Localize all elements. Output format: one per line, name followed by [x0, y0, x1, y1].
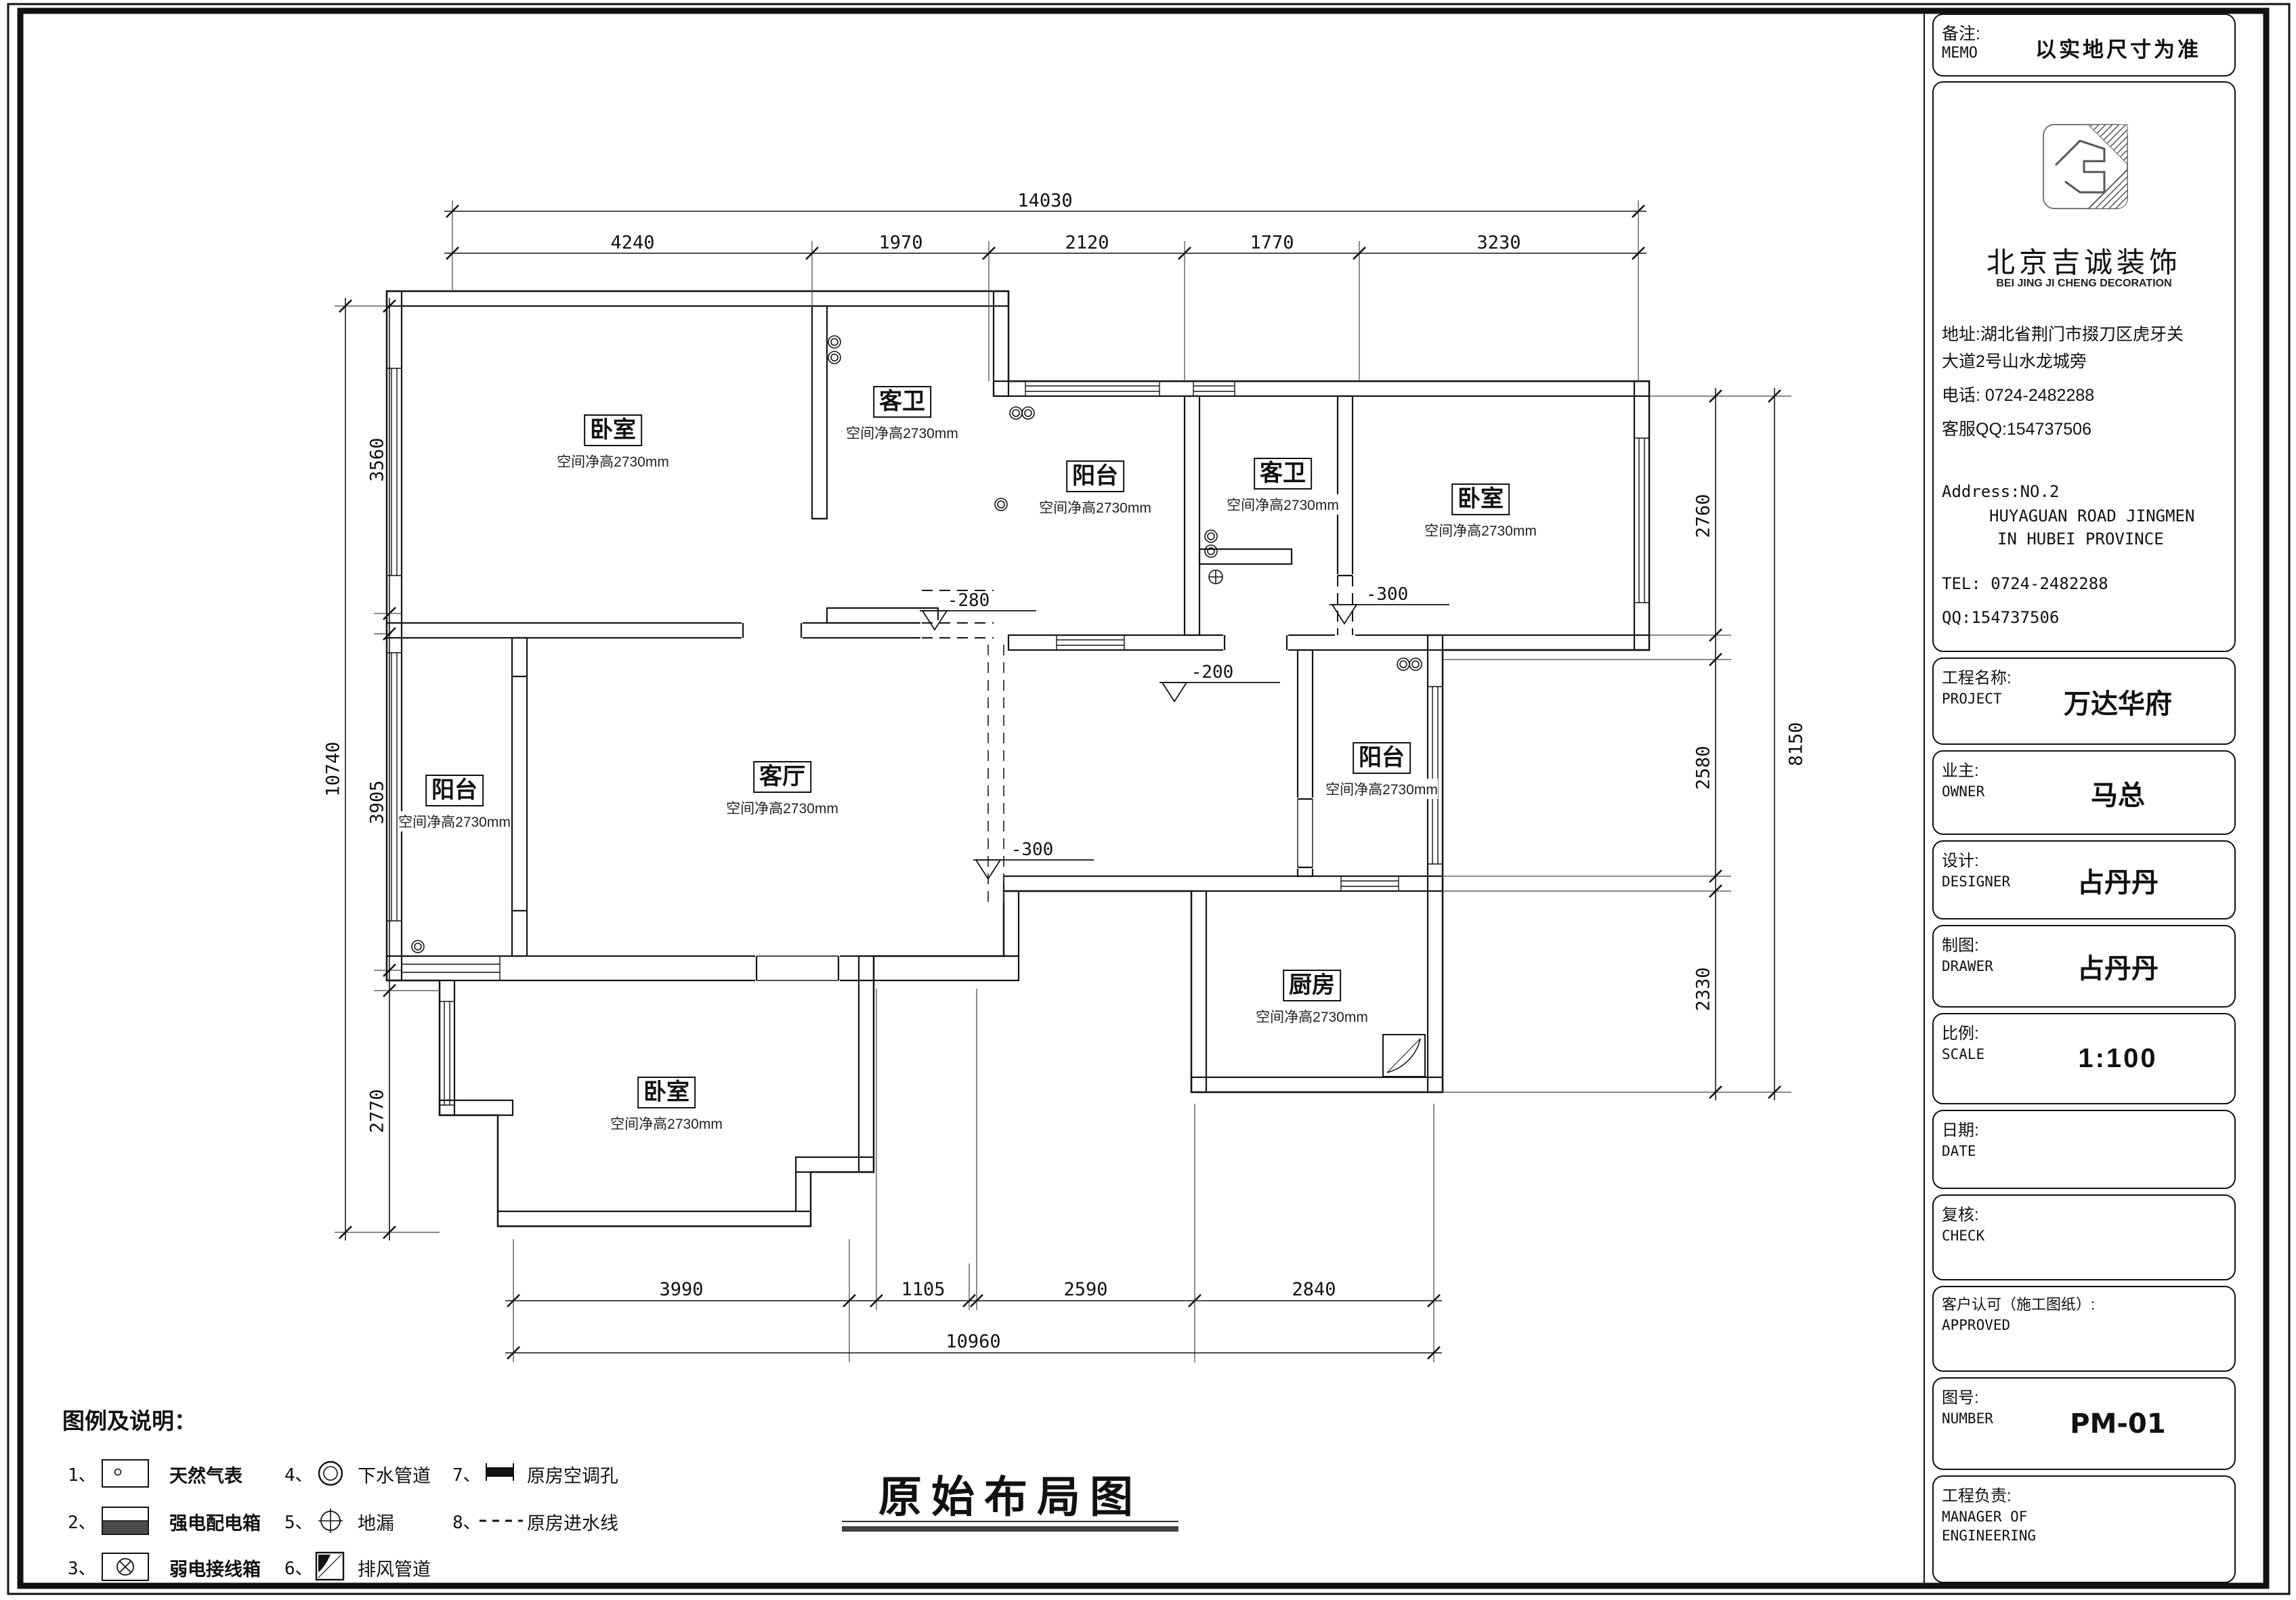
- titleblock-row-project: 工程名称:PROJECT 万达华府: [1932, 657, 2236, 745]
- memo-label: 备注:: [1942, 20, 1980, 45]
- level-label-300a: -300: [1366, 584, 1409, 605]
- room-label-bath-1: 客卫 空间净高2730mm: [846, 386, 958, 443]
- dim-bottom-seg-2: 1105: [901, 1279, 945, 1300]
- room-name: 客卫: [1254, 458, 1312, 490]
- titleblock-row-scale: 比例:SCALE 1:100: [1932, 1013, 2236, 1104]
- dim-top-seg-2: 1970: [878, 232, 922, 253]
- row-label-en: DRAWER: [1942, 958, 1993, 974]
- dim-bottom-seg-1: 3990: [659, 1279, 703, 1300]
- weak-current-box-icon: [100, 1551, 152, 1583]
- titleblock-row-approved: 客户认可（施工图纸）:APPROVED: [1932, 1286, 2236, 1372]
- room-name: 客厅: [753, 761, 811, 793]
- drawing-title: 原始布局图: [878, 1463, 1143, 1525]
- dim-extension-lines: [335, 200, 1791, 1362]
- exhaust-duct-icon: [313, 1549, 348, 1584]
- dim-right-total: 8150: [1786, 722, 1807, 766]
- room-label-living: 客厅 空间净高2730mm: [726, 761, 838, 818]
- room-label-bedroom-1: 卧室 空间净高2730mm: [557, 414, 669, 471]
- row-label: 设计:: [1942, 852, 1979, 870]
- dim-top-seg-5: 3230: [1476, 232, 1521, 253]
- titleblock-row-date: 日期:DATE: [1932, 1110, 2236, 1189]
- row-label: 复核:: [1942, 1206, 1979, 1224]
- ac-hole-icon: [481, 1457, 524, 1487]
- designer-name: 占丹丹: [2008, 842, 2228, 918]
- row-label: 比例:: [1942, 1024, 1979, 1043]
- level-label-280: -280: [948, 590, 990, 611]
- water-inlet-line-icon: [477, 1507, 526, 1534]
- level-label-300b: -300: [1011, 840, 1054, 860]
- dim-top-seg-1: 4240: [610, 232, 654, 253]
- company-name: 北京吉诚装饰: [1986, 240, 2182, 281]
- legend-label-4: 下水管道: [358, 1461, 431, 1488]
- company-address-1: 地址:湖北省荆门市掇刀区虎牙关: [1942, 321, 2184, 345]
- room-label-balcony-left: 阳台 空间净高2730mm: [398, 775, 511, 831]
- legend-label-3: 弱电接线箱: [169, 1555, 261, 1581]
- drawing-number: PM-01: [2008, 1379, 2228, 1469]
- dim-ticks: [339, 205, 1781, 1359]
- room-label-balcony-right: 阳台 空间净高2730mm: [1325, 742, 1438, 799]
- project-name: 万达华府: [2008, 659, 2228, 743]
- room-label-kitchen: 厨房 空间净高2730mm: [1256, 970, 1368, 1026]
- sewer-pipe-icon: [313, 1456, 348, 1491]
- legend-num-3: 3、: [68, 1555, 96, 1580]
- drawer-name: 占丹丹: [2008, 926, 2228, 1006]
- company-address-en-2: HUYAGUAN ROAD JINGMEN: [1989, 506, 2194, 525]
- legend-label-8: 原房进水线: [527, 1509, 618, 1535]
- door-openings: [512, 519, 1355, 983]
- room-label-balcony-top: 阳台 空间净高2730mm: [1039, 460, 1151, 517]
- company-qq-en: QQ:154737506: [1942, 608, 2059, 627]
- legend-label-5: 地漏: [358, 1509, 394, 1535]
- manager-value: [2008, 1477, 2228, 1582]
- room-name: 卧室: [584, 414, 642, 446]
- room-note: 空间净高2730mm: [1256, 1006, 1368, 1026]
- dim-left-total: 10740: [323, 741, 344, 796]
- room-note: 空间净高2730mm: [726, 798, 838, 818]
- row-label: 工程负责:: [1942, 1487, 2012, 1505]
- room-note: 空间净高2730mm: [846, 423, 958, 443]
- row-label-en: OWNER: [1942, 783, 1984, 800]
- row-label-en: SCALE: [1942, 1046, 1984, 1062]
- legend-label-2: 强电配电箱: [169, 1509, 261, 1535]
- dim-bottom-seg-3: 2590: [1063, 1279, 1107, 1300]
- memo-value: 以实地尺寸为准: [2035, 33, 2201, 63]
- floor-drain-icon: [313, 1503, 348, 1538]
- company-qq: 客服QQ:154737506: [1942, 416, 2091, 440]
- legend-label-7: 原房空调孔: [527, 1461, 618, 1488]
- room-label-bedroom-3: 卧室 空间净高2730mm: [610, 1077, 723, 1133]
- company-logo: [2041, 122, 2130, 211]
- dim-right-seg-2: 2580: [1693, 745, 1714, 790]
- room-label-bath-2: 客卫 空间净高2730mm: [1227, 458, 1339, 515]
- company-address-2: 大道2号山水龙城旁: [1942, 348, 2087, 372]
- dim-right-seg-3: 2330: [1693, 967, 1714, 1011]
- company-address-en-1: Address:NO.2: [1942, 482, 2059, 501]
- row-label: 制图:: [1942, 936, 1979, 955]
- dim-top-total: 14030: [1017, 190, 1072, 211]
- row-label: 业主:: [1942, 762, 1979, 780]
- room-name: 卧室: [637, 1077, 696, 1108]
- row-label-en: DATE: [1942, 1143, 1979, 1159]
- room-note: 空间净高2730mm: [1424, 520, 1537, 540]
- dim-right-seg-1: 2760: [1693, 494, 1714, 538]
- dim-bottom-seg-4: 2840: [1292, 1279, 1336, 1300]
- row-label-en: DESIGNER: [1942, 873, 2010, 890]
- room-note: 空间净高2730mm: [610, 1113, 723, 1133]
- dim-top-seg-3: 2120: [1065, 232, 1109, 253]
- titleblock-row-owner: 业主:OWNER 马总: [1932, 750, 2236, 835]
- legend-num-4: 4、: [284, 1461, 313, 1486]
- room-name: 客卫: [873, 386, 931, 418]
- titleblock-row-manager: 工程负责:MANAGER OFENGINEERING: [1932, 1475, 2236, 1583]
- titleblock-row-check: 复核:CHECK: [1932, 1194, 2236, 1280]
- company-name-en: BEI JING JI CHENG DECORATION: [1996, 278, 2171, 290]
- titleblock-row-number: 图号:NUMBER PM-01: [1932, 1377, 2236, 1470]
- company-tel-en: TEL: 0724-2482288: [1942, 574, 2108, 593]
- company-address-en-3: IN HUBEI PROVINCE: [1997, 529, 2164, 548]
- check-value: [2008, 1196, 2228, 1279]
- room-name: 阳台: [1066, 460, 1124, 492]
- dim-top-seg-4: 1770: [1250, 232, 1294, 253]
- room-label-bedroom-2: 卧室 空间净高2730mm: [1424, 483, 1537, 540]
- company-phone: 电话: 0724-2482288: [1942, 382, 2094, 406]
- date-value: [2008, 1111, 2228, 1188]
- power-distribution-box-icon: [100, 1505, 152, 1537]
- room-note: 空间净高2730mm: [1325, 779, 1438, 799]
- row-label-en: CHECK: [1942, 1228, 1984, 1244]
- row-label-en: PROJECT: [1942, 691, 2012, 707]
- dim-lines: [345, 211, 1774, 1353]
- drawing-sheet: 14030 4240 1970 2120 1770 3230 10740 356…: [0, 0, 2296, 1600]
- legend-title: 图例及说明：: [62, 1403, 196, 1435]
- dim-left-seg-2: 3905: [367, 780, 388, 824]
- titleblock-row-designer: 设计:DESIGNER 占丹丹: [1932, 840, 2236, 920]
- dim-left-seg-1: 3560: [367, 437, 388, 481]
- legend-num-6: 6、: [284, 1555, 313, 1580]
- legend-num-1: 1、: [68, 1461, 96, 1486]
- level-label-200: -200: [1191, 662, 1234, 683]
- titleblock-company-box: 北京吉诚装饰 BEI JING JI CHENG DECORATION 地址:湖…: [1932, 81, 2236, 652]
- room-name: 卧室: [1451, 483, 1510, 515]
- scale-value: 1:100: [2008, 1014, 2228, 1103]
- room-note: 空间净高2730mm: [398, 811, 511, 831]
- legend-num-2: 2、: [68, 1509, 96, 1534]
- legend-num-5: 5、: [284, 1509, 313, 1534]
- room-name: 厨房: [1283, 970, 1341, 1001]
- owner-name: 马总: [2008, 752, 2228, 834]
- room-name: 阳台: [425, 775, 484, 806]
- row-label: 图号:: [1942, 1389, 1979, 1407]
- titleblock-memo-box: 备注: MEMO 以实地尺寸为准: [1932, 14, 2236, 77]
- row-label: 工程名称:: [1942, 669, 2012, 687]
- legend-num-7: 7、: [452, 1461, 481, 1486]
- room-note: 空间净高2730mm: [1039, 497, 1151, 517]
- gas-meter-icon: [100, 1457, 152, 1490]
- dim-left-seg-3: 2770: [367, 1089, 388, 1133]
- level-dashed-lines: [988, 645, 1004, 907]
- row-label: 日期:: [1942, 1121, 1979, 1140]
- approved-value: [2008, 1287, 2228, 1370]
- room-name: 阳台: [1353, 742, 1411, 774]
- memo-label-en: MEMO: [1942, 45, 1978, 62]
- room-note: 空间净高2730mm: [1227, 494, 1339, 515]
- dim-bottom-total: 10960: [945, 1331, 1000, 1352]
- room-note: 空间净高2730mm: [557, 451, 669, 471]
- legend-label-6: 排风管道: [358, 1555, 431, 1581]
- row-label-en: NUMBER: [1942, 1410, 1993, 1427]
- windows: [387, 368, 1649, 1105]
- legend-label-1: 天然气表: [169, 1461, 242, 1488]
- titleblock-row-drawer: 制图:DRAWER 占丹丹: [1932, 925, 2236, 1008]
